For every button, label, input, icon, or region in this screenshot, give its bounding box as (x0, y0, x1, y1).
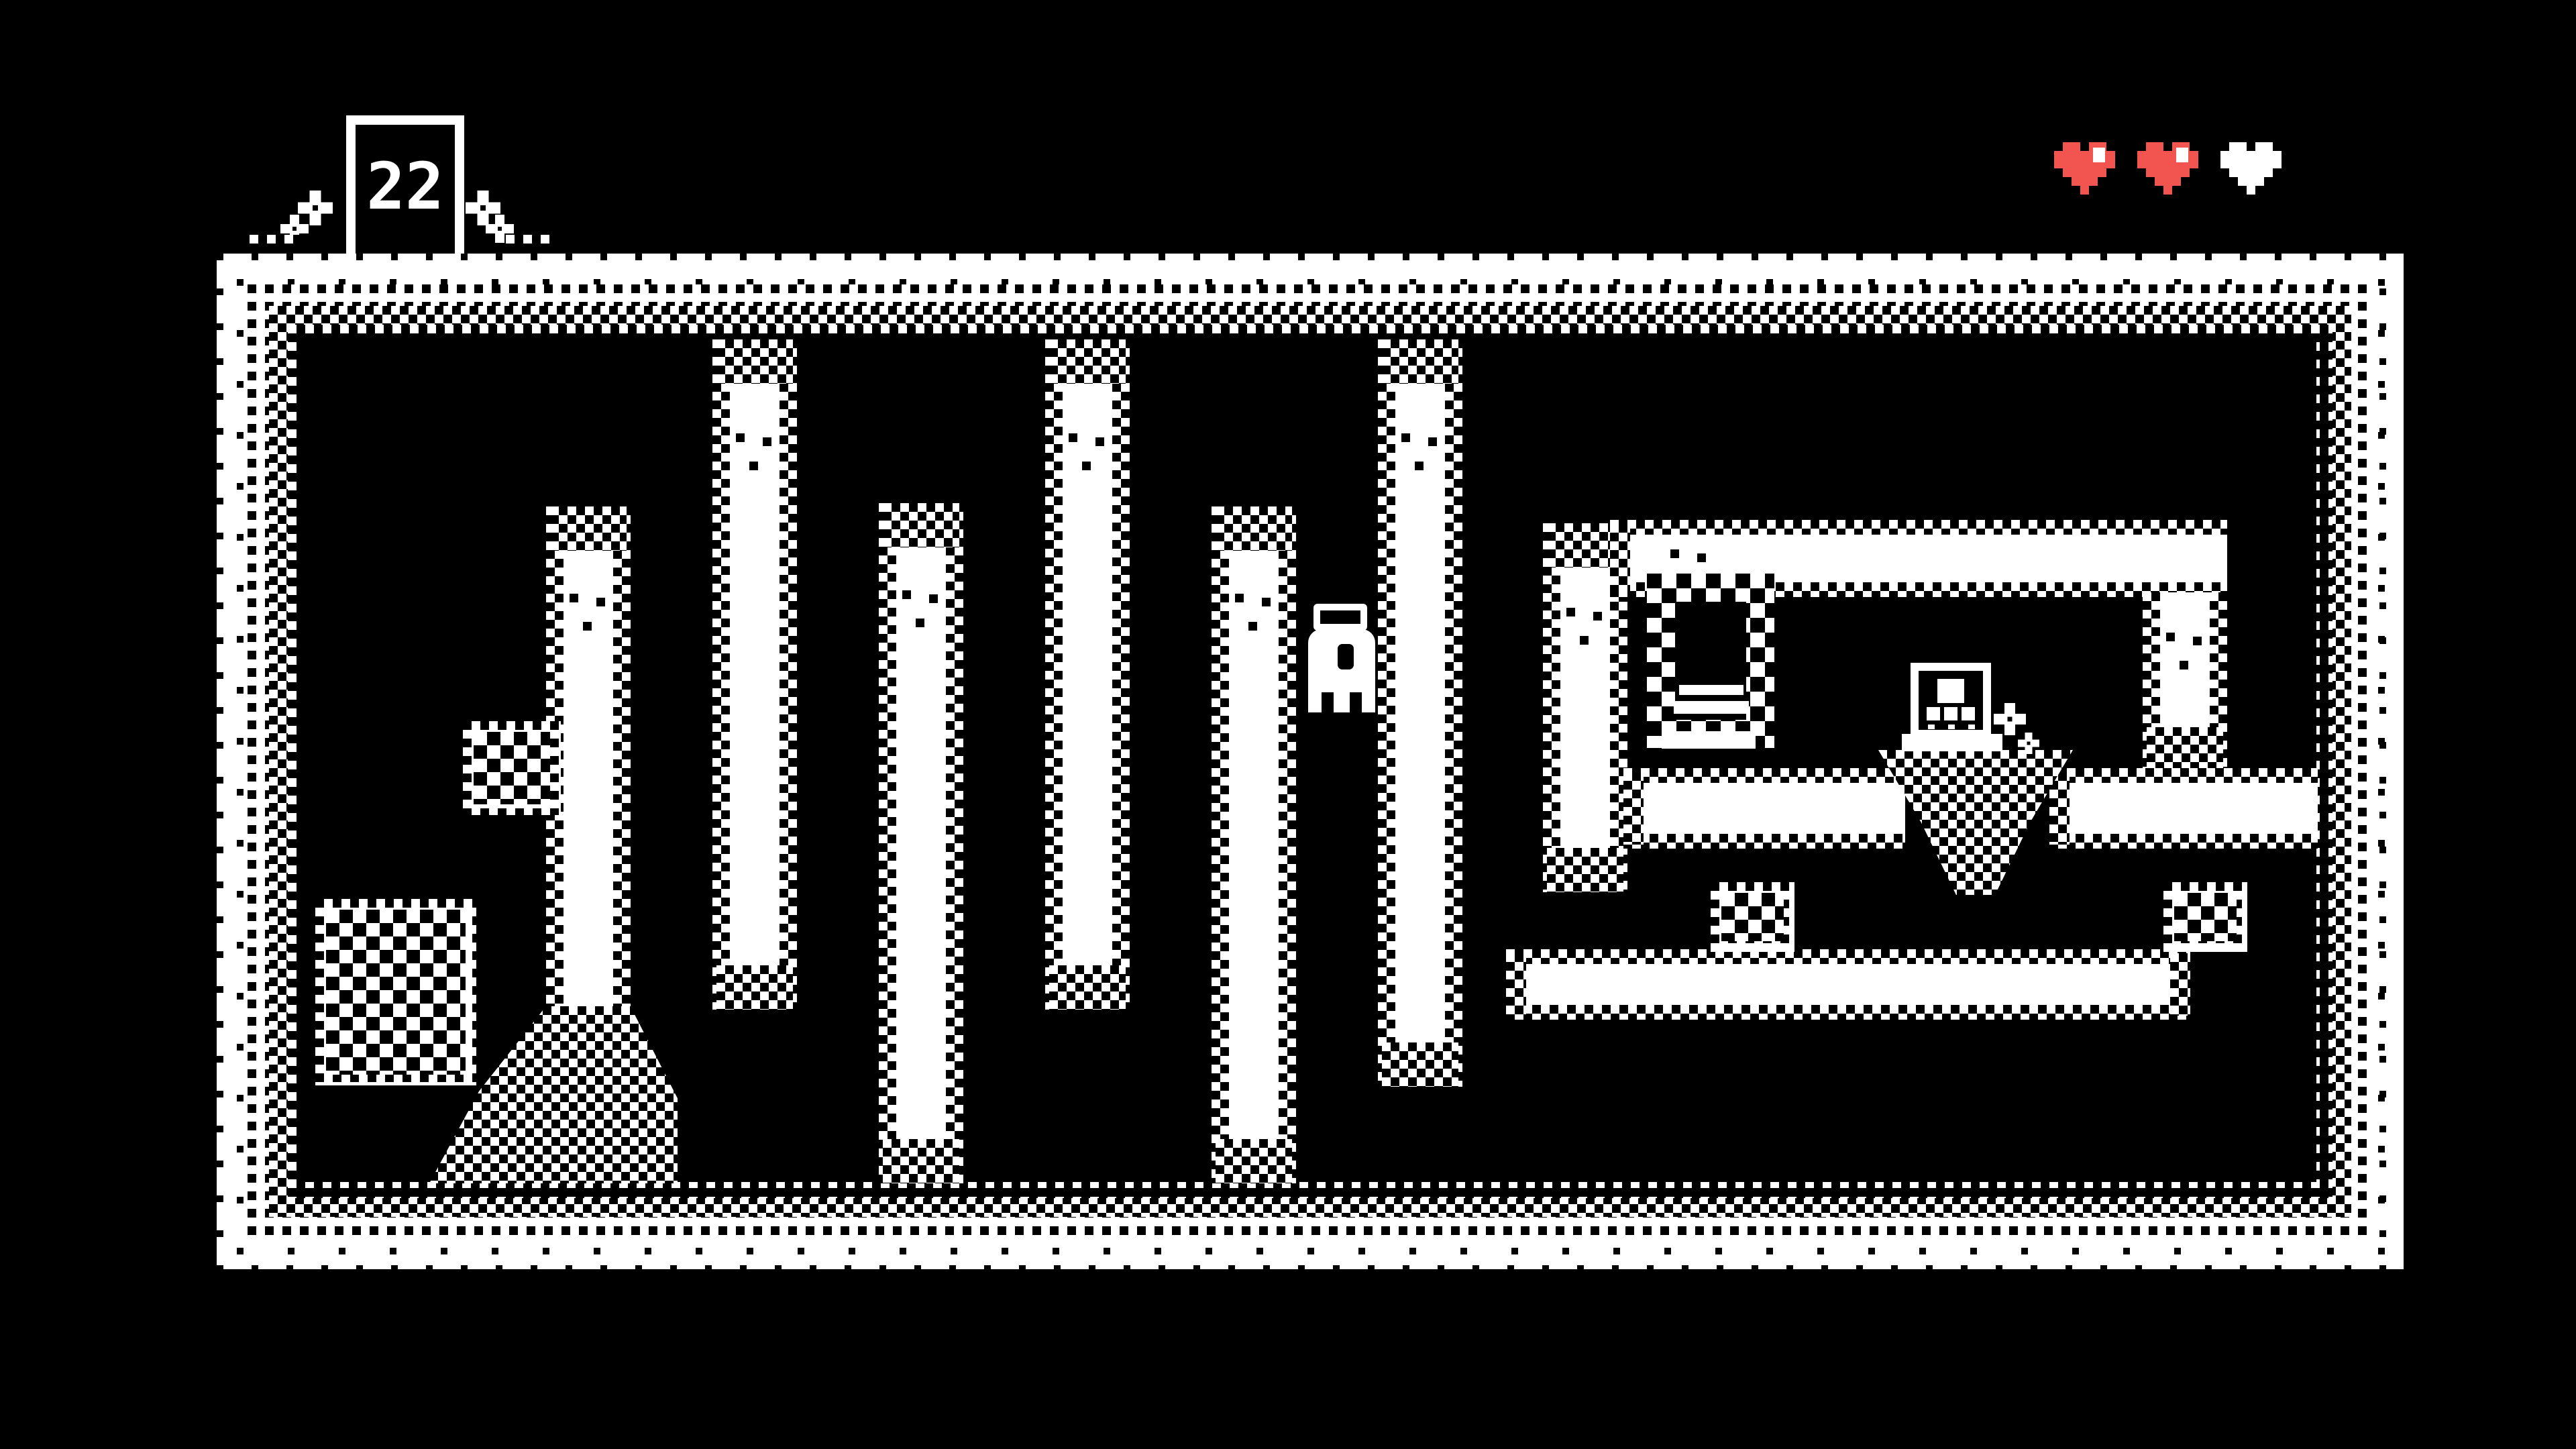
shrine-dot (1948, 724, 1955, 729)
maze-pillar (1045, 339, 1130, 1010)
shrine-dot (1928, 724, 1935, 729)
doorway-icon (1647, 574, 1774, 748)
maze-pillar (1378, 339, 1462, 1087)
heart-empty-icon (2220, 142, 2282, 203)
door-step (1674, 701, 1749, 714)
heart-highlight (2176, 148, 2188, 162)
dither-dots (902, 590, 911, 599)
player-hat (1313, 604, 1367, 631)
heart-highlight (2093, 148, 2105, 162)
heart-full-icon (2054, 142, 2115, 203)
alcove-mid-beam (2049, 768, 2318, 849)
shrine-dot (1968, 724, 1975, 729)
player-icon (1308, 604, 1375, 712)
heart-full-icon (2137, 142, 2198, 203)
health-bar (2054, 142, 2336, 206)
dither-dots (1069, 433, 1077, 442)
dither-dots (1235, 594, 1244, 602)
shrine-icon (1911, 663, 1991, 738)
dither-dots (1566, 608, 1575, 616)
dither-dots (2166, 633, 2175, 641)
maze-pillar (1212, 506, 1296, 1183)
checker-block (315, 899, 476, 1085)
maze-pillar (879, 503, 963, 1183)
door-step (1679, 685, 1743, 695)
dither-dots (570, 594, 578, 602)
shrine-square (1962, 707, 1975, 720)
alcove-bottom-beam (1506, 949, 2190, 1020)
game-viewport[interactable]: 22 (0, 0, 2576, 1449)
step-counter-sign: 22 (346, 115, 464, 254)
flower-icon (1994, 703, 2026, 735)
wall-speckle (506, 235, 557, 252)
dither-dots (1401, 433, 1410, 442)
door-threshold (1662, 731, 1756, 749)
shrine-square (1927, 707, 1940, 720)
step-counter-value: 22 (356, 154, 455, 219)
flower-icon (2018, 733, 2039, 754)
checker-block (1711, 882, 1794, 952)
play-field (217, 254, 2404, 1269)
dither-dots (736, 433, 745, 442)
checker-block (2163, 882, 2247, 952)
maze-pillar (712, 339, 797, 1010)
player-eye (1338, 644, 1354, 669)
player-body (1308, 629, 1375, 712)
wall-speckle (250, 235, 301, 252)
alcove-mid-beam (1623, 768, 1905, 849)
alcove-right-wall (2143, 592, 2227, 771)
shrine-square (1944, 707, 1957, 720)
checker-block (463, 721, 561, 815)
shrine-eye (1937, 679, 1964, 703)
dither-dots (1670, 549, 1679, 558)
